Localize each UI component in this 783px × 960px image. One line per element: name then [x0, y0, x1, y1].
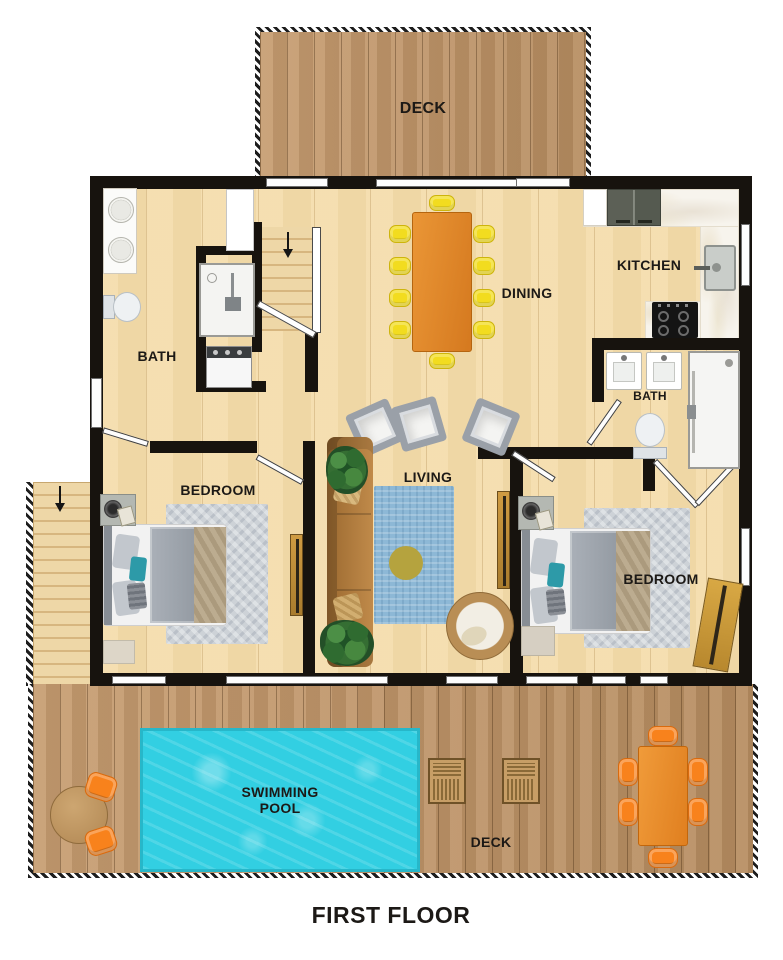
room-label-pool: SWIMMING POOL — [222, 784, 338, 816]
toilet-bowl — [113, 292, 141, 322]
wicker-pillow — [459, 623, 490, 649]
dining-chair — [429, 353, 455, 369]
down-arrow-icon — [287, 232, 289, 250]
sofa-cushion-seam — [337, 513, 371, 515]
fridge-handle — [638, 220, 652, 223]
dining-chair — [389, 225, 411, 243]
dining-chair — [473, 321, 495, 339]
deck-dining-chair — [618, 758, 638, 786]
console-table — [497, 491, 510, 589]
shower-head-icon — [225, 297, 241, 311]
shower-head-icon — [725, 359, 733, 367]
deck-dining-chair — [648, 848, 678, 868]
window — [266, 178, 328, 187]
wall-bedroom-right-top — [523, 447, 645, 459]
bed — [103, 524, 227, 626]
room-label-bath-left: BATH — [97, 348, 217, 364]
wall-bath-right-top — [592, 338, 739, 350]
sink — [108, 197, 134, 223]
cooktop-knobs — [658, 304, 690, 307]
washer-knob-icon — [237, 350, 242, 355]
shower-handle-icon — [687, 405, 696, 419]
stair-closet — [226, 189, 254, 251]
window — [592, 676, 626, 684]
deck-dining-chair — [648, 726, 678, 746]
headboard — [104, 525, 112, 625]
headboard — [522, 529, 530, 633]
faucet-icon — [621, 355, 627, 361]
window — [112, 676, 166, 684]
deck-dining-chair — [688, 798, 708, 826]
pillow-teal — [129, 556, 147, 582]
book-icon — [117, 505, 136, 526]
shower-pipe — [231, 273, 234, 297]
sink-basin — [653, 362, 675, 382]
down-arrow-head-icon — [55, 503, 65, 512]
burner-icon — [658, 311, 669, 322]
foot-bench — [521, 626, 555, 656]
deck-dining-table — [638, 746, 688, 846]
book-icon — [535, 509, 554, 530]
kitchen-cabinet — [583, 189, 607, 226]
shower-drain-icon — [207, 273, 217, 283]
room-label-bath-right: BATH — [590, 389, 710, 403]
sliding-door — [376, 179, 518, 187]
burner-icon — [678, 311, 689, 322]
lounger-seat — [433, 779, 461, 800]
page-title: FIRST FLOOR — [241, 902, 541, 929]
pillow-striped — [127, 582, 148, 610]
dining-chair — [389, 321, 411, 339]
room-label-kitchen: KITCHEN — [589, 257, 709, 273]
shower — [688, 351, 740, 469]
faucet-icon — [661, 355, 667, 361]
room-label-bedroom-right: BEDROOM — [581, 571, 741, 587]
lounger-back — [507, 763, 535, 776]
faucet-knob-icon — [712, 263, 721, 272]
deck-dining-chair — [618, 798, 638, 826]
room-label-deck-bottom: DECK — [431, 834, 551, 850]
foot-bench — [103, 640, 135, 664]
dining-chair — [473, 225, 495, 243]
lounger-back — [433, 763, 461, 776]
cooktop — [652, 302, 698, 338]
sink — [108, 237, 134, 263]
left-exterior-stairs — [33, 482, 91, 686]
plant — [326, 446, 368, 494]
bench-detail — [709, 585, 727, 664]
refrigerator — [607, 189, 661, 226]
left-stairs-border — [26, 482, 33, 686]
room-label-bedroom-left: BEDROOM — [138, 482, 298, 498]
window — [741, 528, 750, 586]
dining-table — [412, 212, 472, 352]
desk-detail — [296, 539, 299, 613]
nightstand — [518, 496, 554, 530]
nightstand — [100, 494, 136, 526]
deck-dining-chair — [688, 758, 708, 786]
plant — [320, 620, 374, 666]
burner-icon — [678, 325, 689, 336]
sink — [646, 352, 682, 390]
sink — [606, 352, 642, 390]
wall-bedroom-left-right — [303, 441, 315, 686]
lounger-seat — [507, 779, 535, 800]
fridge-handle — [616, 220, 630, 223]
toilet — [631, 413, 669, 461]
toilet-tank — [633, 447, 667, 459]
stair-railing — [312, 227, 321, 333]
window — [741, 224, 750, 286]
burner-icon — [658, 325, 669, 336]
window — [526, 676, 578, 684]
bath-vanity — [103, 188, 137, 274]
toilet — [103, 291, 143, 323]
toilet-bowl — [635, 413, 665, 447]
shower — [199, 263, 255, 337]
window — [226, 676, 388, 684]
lounge-chair — [502, 758, 540, 804]
floor-plan: DECK KITCHEN DINING BATH BATH LIVING BED… — [0, 0, 783, 960]
desk — [290, 534, 303, 616]
wall-bedroom-left-top — [150, 441, 257, 453]
pillow-striped — [546, 588, 567, 616]
pillow-teal — [547, 562, 565, 588]
round-wicker-chair — [446, 592, 514, 660]
dining-chair — [389, 257, 411, 275]
wall-exterior-left — [90, 176, 103, 686]
room-label-dining: DINING — [467, 285, 587, 301]
sofa-pillow — [332, 592, 364, 624]
down-arrow-head-icon — [283, 249, 293, 258]
rug-accent-circle — [389, 546, 423, 580]
dining-chair — [473, 257, 495, 275]
window — [516, 178, 570, 187]
washer-knob-icon — [225, 350, 230, 355]
blanket — [194, 527, 226, 623]
sink-basin — [613, 362, 635, 382]
room-label-deck-top: DECK — [353, 100, 493, 118]
dining-chair — [429, 195, 455, 211]
window — [446, 676, 498, 684]
console-detail — [503, 496, 506, 586]
room-label-living: LIVING — [368, 469, 488, 485]
lounge-chair — [428, 758, 466, 804]
window — [640, 676, 668, 684]
down-arrow-icon — [59, 486, 61, 504]
dining-chair — [389, 289, 411, 307]
window — [91, 378, 102, 428]
sofa-cushion-seam — [337, 589, 371, 591]
